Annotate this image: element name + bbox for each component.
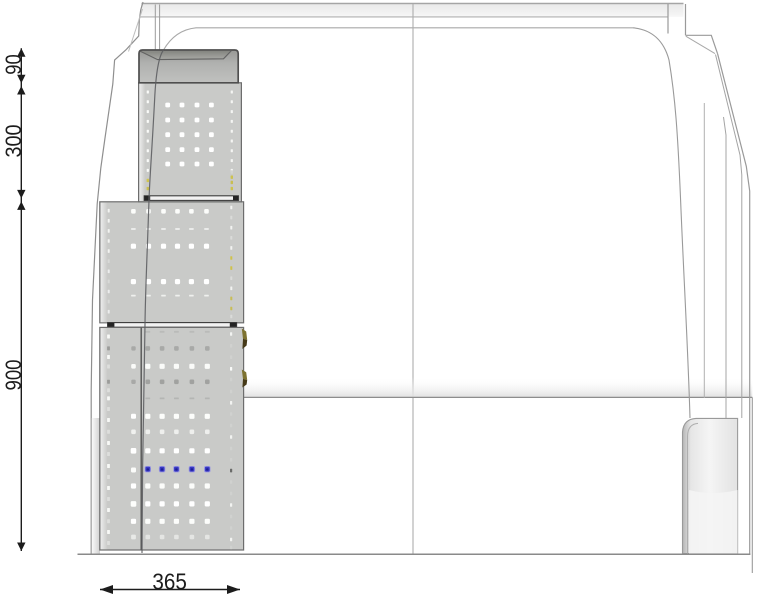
svg-text:300: 300 — [1, 125, 26, 158]
svg-text:90: 90 — [1, 54, 26, 75]
svg-text:900: 900 — [1, 360, 26, 391]
svg-text:365: 365 — [152, 569, 187, 595]
